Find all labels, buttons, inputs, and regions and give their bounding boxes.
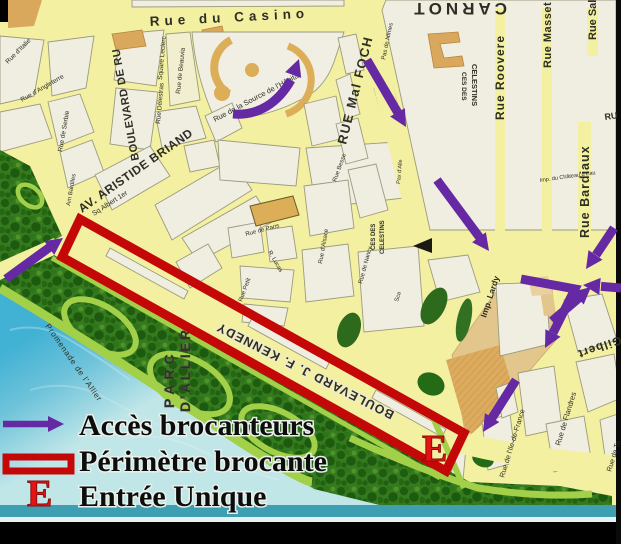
svg-text:CELESTINS: CELESTINS (380, 220, 386, 254)
svg-text:E: E (27, 473, 52, 515)
svg-text:Rue Roovere: Rue Roovere (493, 35, 507, 120)
svg-text:CES DES: CES DES (371, 224, 377, 250)
svg-text:PARC: PARC (161, 349, 177, 408)
svg-text:Rue Bardiaux: Rue Bardiaux (578, 145, 592, 238)
svg-text:Rue Salig: Rue Salig (587, 0, 599, 40)
svg-text:Rue Masset: Rue Masset (542, 2, 554, 68)
svg-text:D’ALLIER: D’ALLIER (177, 327, 193, 412)
svg-text:Entrée Unique: Entrée Unique (79, 480, 267, 513)
svg-text:Accès brocanteurs: Accès brocanteurs (79, 409, 314, 442)
svg-text:CES DES: CES DES (460, 72, 467, 101)
svg-text:CELESTINS: CELESTINS (470, 64, 479, 106)
svg-text:Périmètre brocante: Périmètre brocante (79, 445, 327, 478)
svg-text:RU: RU (604, 110, 618, 122)
svg-text:CARNOT: CARNOT (410, 0, 507, 18)
svg-text:E: E (422, 428, 447, 470)
